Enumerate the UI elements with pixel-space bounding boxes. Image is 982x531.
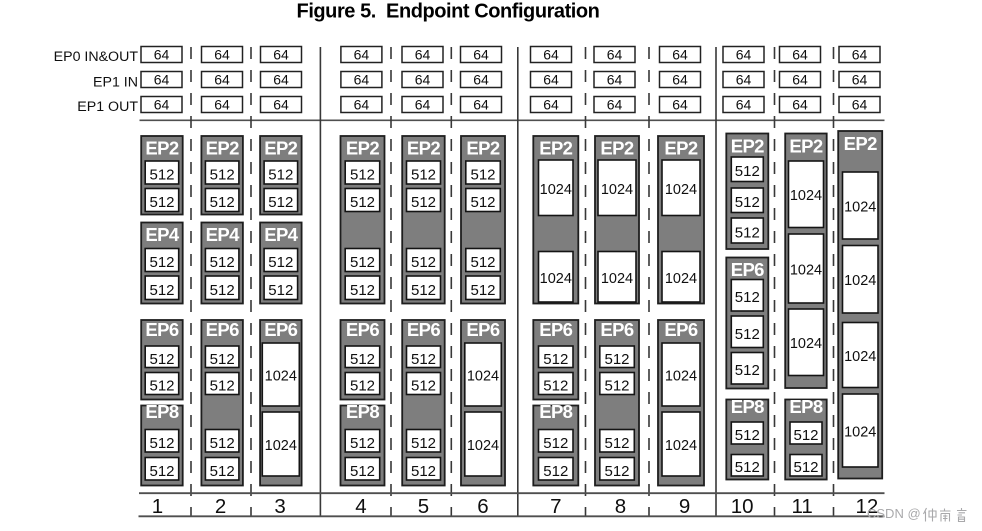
svg-text:EP4: EP4 (206, 224, 240, 245)
svg-text:EP2: EP2 (145, 138, 178, 159)
svg-text:EP8: EP8 (789, 396, 822, 417)
svg-text:512: 512 (411, 351, 436, 368)
svg-text:10: 10 (731, 495, 754, 518)
svg-text:EP2: EP2 (844, 133, 877, 154)
svg-text:CSDN @: CSDN @ (867, 506, 921, 521)
svg-text:EP2: EP2 (407, 138, 440, 159)
svg-text:512: 512 (543, 378, 568, 395)
svg-text:11: 11 (792, 495, 813, 518)
svg-text:512: 512 (350, 282, 375, 299)
svg-text:512: 512 (411, 282, 436, 299)
svg-text:512: 512 (350, 351, 375, 368)
svg-text:EP8: EP8 (145, 401, 178, 422)
svg-text:64: 64 (154, 97, 170, 113)
svg-text:64: 64 (415, 47, 431, 63)
svg-text:EP2: EP2 (264, 138, 297, 159)
svg-text:512: 512 (149, 254, 174, 271)
svg-text:512: 512 (210, 435, 235, 452)
svg-text:1024: 1024 (540, 182, 572, 198)
svg-text:64: 64 (736, 72, 752, 88)
svg-text:512: 512 (149, 167, 174, 184)
svg-text:EP2: EP2 (789, 136, 822, 157)
svg-text:EP0 IN&OUT: EP0 IN&OUT (54, 49, 139, 65)
svg-text:64: 64 (473, 97, 489, 113)
svg-text:512: 512 (149, 463, 174, 480)
svg-text:1024: 1024 (601, 271, 633, 287)
svg-text:512: 512 (411, 463, 436, 480)
svg-text:512: 512 (735, 362, 760, 379)
svg-text:64: 64 (154, 47, 170, 63)
svg-text:512: 512 (268, 254, 293, 271)
svg-text:512: 512 (149, 194, 174, 211)
svg-text:512: 512 (268, 282, 293, 299)
svg-text:512: 512 (470, 194, 495, 211)
svg-text:7: 7 (550, 495, 561, 518)
svg-text:512: 512 (268, 167, 293, 184)
svg-text:512: 512 (735, 225, 760, 242)
svg-text:64: 64 (672, 97, 688, 113)
svg-text:512: 512 (149, 435, 174, 452)
svg-text:64: 64 (354, 97, 370, 113)
svg-text:512: 512 (350, 167, 375, 184)
svg-text:EP1 IN: EP1 IN (93, 75, 138, 91)
svg-text:1024: 1024 (265, 438, 297, 454)
svg-text:512: 512 (470, 167, 495, 184)
svg-text:1024: 1024 (467, 438, 499, 454)
svg-text:64: 64 (273, 97, 289, 113)
svg-text:1024: 1024 (265, 369, 297, 385)
svg-text:EP2: EP2 (346, 138, 379, 159)
svg-text:512: 512 (210, 254, 235, 271)
svg-text:6: 6 (477, 495, 488, 518)
svg-text:1024: 1024 (467, 369, 499, 385)
svg-text:1024: 1024 (844, 349, 876, 365)
svg-text:EP2: EP2 (664, 138, 697, 159)
svg-text:4: 4 (355, 495, 366, 518)
svg-text:1: 1 (152, 495, 163, 518)
svg-text:64: 64 (214, 47, 230, 63)
svg-text:512: 512 (604, 351, 629, 368)
svg-text:64: 64 (415, 97, 431, 113)
svg-text:64: 64 (736, 47, 752, 63)
svg-text:1024: 1024 (665, 271, 697, 287)
svg-text:64: 64 (354, 47, 370, 63)
svg-text:64: 64 (792, 47, 808, 63)
svg-text:EP6: EP6 (731, 259, 764, 280)
svg-text:1024: 1024 (790, 263, 822, 279)
svg-text:EP4: EP4 (264, 224, 298, 245)
svg-text:512: 512 (543, 435, 568, 452)
svg-text:512: 512 (350, 254, 375, 271)
svg-text:512: 512 (149, 282, 174, 299)
svg-text:512: 512 (470, 254, 495, 271)
svg-text:512: 512 (543, 463, 568, 480)
svg-text:512: 512 (735, 163, 760, 180)
svg-text:EP6: EP6 (346, 319, 379, 340)
svg-text:EP6: EP6 (206, 319, 239, 340)
svg-text:EP6: EP6 (407, 319, 440, 340)
svg-text:64: 64 (543, 97, 559, 113)
svg-text:512: 512 (210, 167, 235, 184)
svg-text:3: 3 (274, 495, 285, 518)
svg-text:EP6: EP6 (664, 319, 697, 340)
svg-text:1024: 1024 (844, 273, 876, 289)
svg-text:EP6: EP6 (145, 319, 178, 340)
svg-text:512: 512 (350, 194, 375, 211)
svg-text:EP6: EP6 (264, 319, 297, 340)
svg-text:512: 512 (350, 463, 375, 480)
svg-text:512: 512 (210, 378, 235, 395)
svg-text:1024: 1024 (540, 271, 572, 287)
svg-text:512: 512 (735, 289, 760, 306)
svg-text:64: 64 (543, 47, 559, 63)
svg-text:512: 512 (210, 351, 235, 368)
svg-text:EP8: EP8 (731, 396, 764, 417)
svg-text:512: 512 (149, 378, 174, 395)
svg-text:EP1 OUT: EP1 OUT (77, 99, 138, 115)
svg-text:64: 64 (273, 72, 289, 88)
svg-text:512: 512 (411, 194, 436, 211)
svg-text:1024: 1024 (844, 200, 876, 216)
svg-text:64: 64 (792, 72, 808, 88)
svg-text:64: 64 (214, 97, 230, 113)
svg-text:512: 512 (735, 326, 760, 343)
svg-text:64: 64 (273, 47, 289, 63)
svg-text:EP4: EP4 (145, 224, 179, 245)
svg-text:8: 8 (615, 495, 626, 518)
svg-text:512: 512 (735, 194, 760, 211)
svg-text:512: 512 (411, 378, 436, 395)
svg-text:EP6: EP6 (466, 319, 499, 340)
svg-text:512: 512 (210, 463, 235, 480)
svg-text:64: 64 (672, 47, 688, 63)
svg-text:512: 512 (268, 194, 293, 211)
svg-text:EP2: EP2 (466, 138, 499, 159)
svg-text:64: 64 (473, 47, 489, 63)
svg-text:64: 64 (607, 72, 623, 88)
svg-text:512: 512 (411, 254, 436, 271)
svg-text:512: 512 (604, 435, 629, 452)
svg-text:512: 512 (543, 351, 568, 368)
svg-text:1024: 1024 (790, 188, 822, 204)
svg-text:512: 512 (210, 194, 235, 211)
svg-text:EP6: EP6 (600, 319, 633, 340)
svg-text:512: 512 (735, 427, 760, 444)
svg-text:64: 64 (473, 72, 489, 88)
svg-text:1024: 1024 (790, 336, 822, 352)
svg-text:512: 512 (604, 463, 629, 480)
svg-text:64: 64 (154, 72, 170, 88)
svg-text:EP2: EP2 (206, 138, 239, 159)
svg-text:1024: 1024 (601, 182, 633, 198)
svg-text:64: 64 (792, 97, 808, 113)
svg-text:512: 512 (604, 378, 629, 395)
svg-text:EP8: EP8 (346, 401, 379, 422)
svg-text:EP2: EP2 (600, 138, 633, 159)
svg-text:512: 512 (735, 459, 760, 476)
svg-text:512: 512 (210, 282, 235, 299)
svg-text:EP2: EP2 (731, 136, 764, 157)
svg-text:512: 512 (793, 459, 818, 476)
svg-text:64: 64 (607, 47, 623, 63)
svg-text:64: 64 (543, 72, 559, 88)
svg-text:1024: 1024 (665, 438, 697, 454)
svg-text:1024: 1024 (665, 369, 697, 385)
svg-text:64: 64 (607, 97, 623, 113)
svg-text:512: 512 (350, 378, 375, 395)
svg-text:Figure 5. Endpoint Configurat: Figure 5. Endpoint Configuration (297, 1, 600, 23)
svg-text:1024: 1024 (665, 182, 697, 198)
svg-text:1024: 1024 (844, 425, 876, 441)
svg-text:2: 2 (215, 495, 226, 518)
svg-text:EP6: EP6 (539, 319, 572, 340)
svg-text:64: 64 (852, 47, 868, 63)
svg-text:64: 64 (354, 72, 370, 88)
svg-text:64: 64 (852, 97, 868, 113)
svg-text:512: 512 (149, 351, 174, 368)
svg-text:512: 512 (411, 167, 436, 184)
svg-text:512: 512 (793, 427, 818, 444)
svg-text:512: 512 (411, 435, 436, 452)
svg-text:64: 64 (672, 72, 688, 88)
svg-text:EP2: EP2 (539, 138, 572, 159)
svg-text:9: 9 (679, 495, 690, 518)
svg-text:512: 512 (350, 435, 375, 452)
svg-text:5: 5 (418, 495, 429, 518)
svg-text:512: 512 (470, 282, 495, 299)
svg-text:64: 64 (736, 97, 752, 113)
svg-text:64: 64 (214, 72, 230, 88)
svg-text:EP8: EP8 (539, 401, 572, 422)
svg-text:64: 64 (415, 72, 431, 88)
svg-text:64: 64 (852, 72, 868, 88)
